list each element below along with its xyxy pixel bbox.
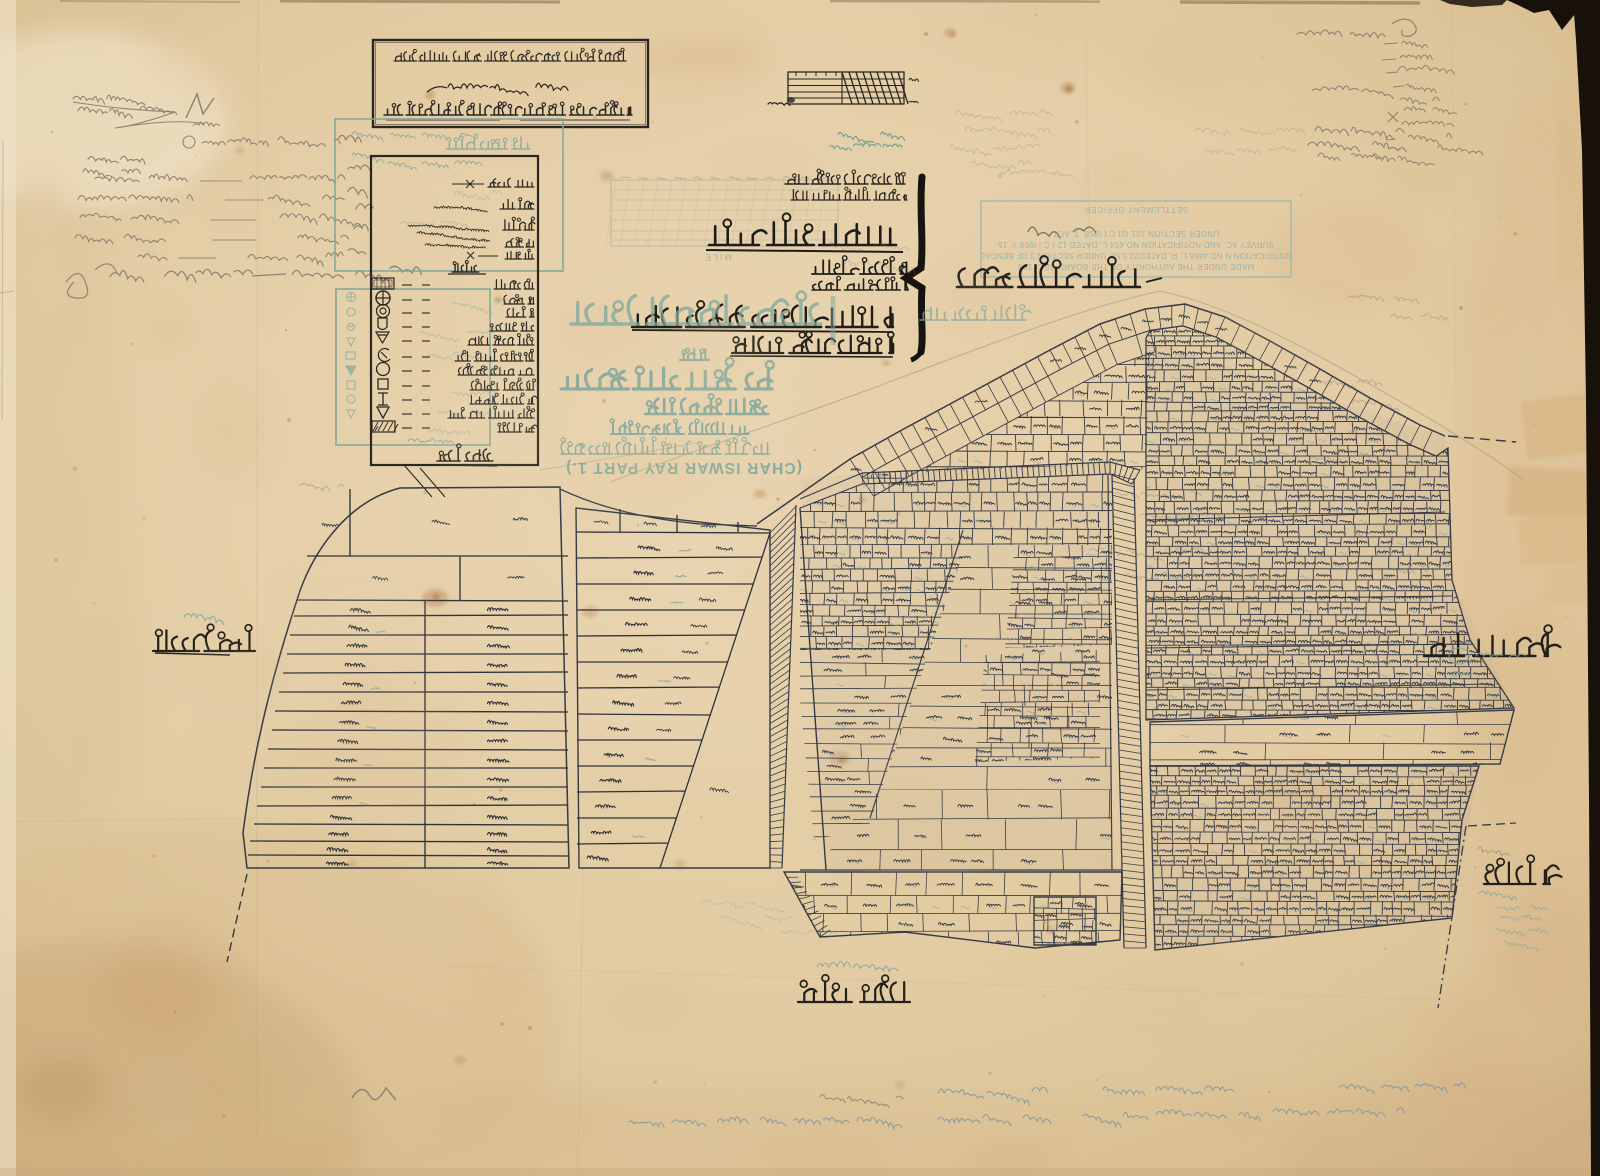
svg-text:MILE: MILE [703,252,732,262]
svg-text:UNDER SECTION 101 I2I C I I9: UNDER SECTION 101 I2I C I I958. T. ACT [1053,229,1220,238]
svg-text:NOTIFICATION N NO.4466 L. R. D: NOTIFICATION N NO.4466 L. R. DATED22.3.5… [980,251,1292,260]
svg-text:SURVEY AC. AND NOTIFICATION NO: SURVEY AC. AND NOTIFICATION NO.454 L. DA… [998,240,1275,249]
svg-text:SETTLEMENT OFFICER: SETTLEMENT OFFICER [1084,205,1188,214]
